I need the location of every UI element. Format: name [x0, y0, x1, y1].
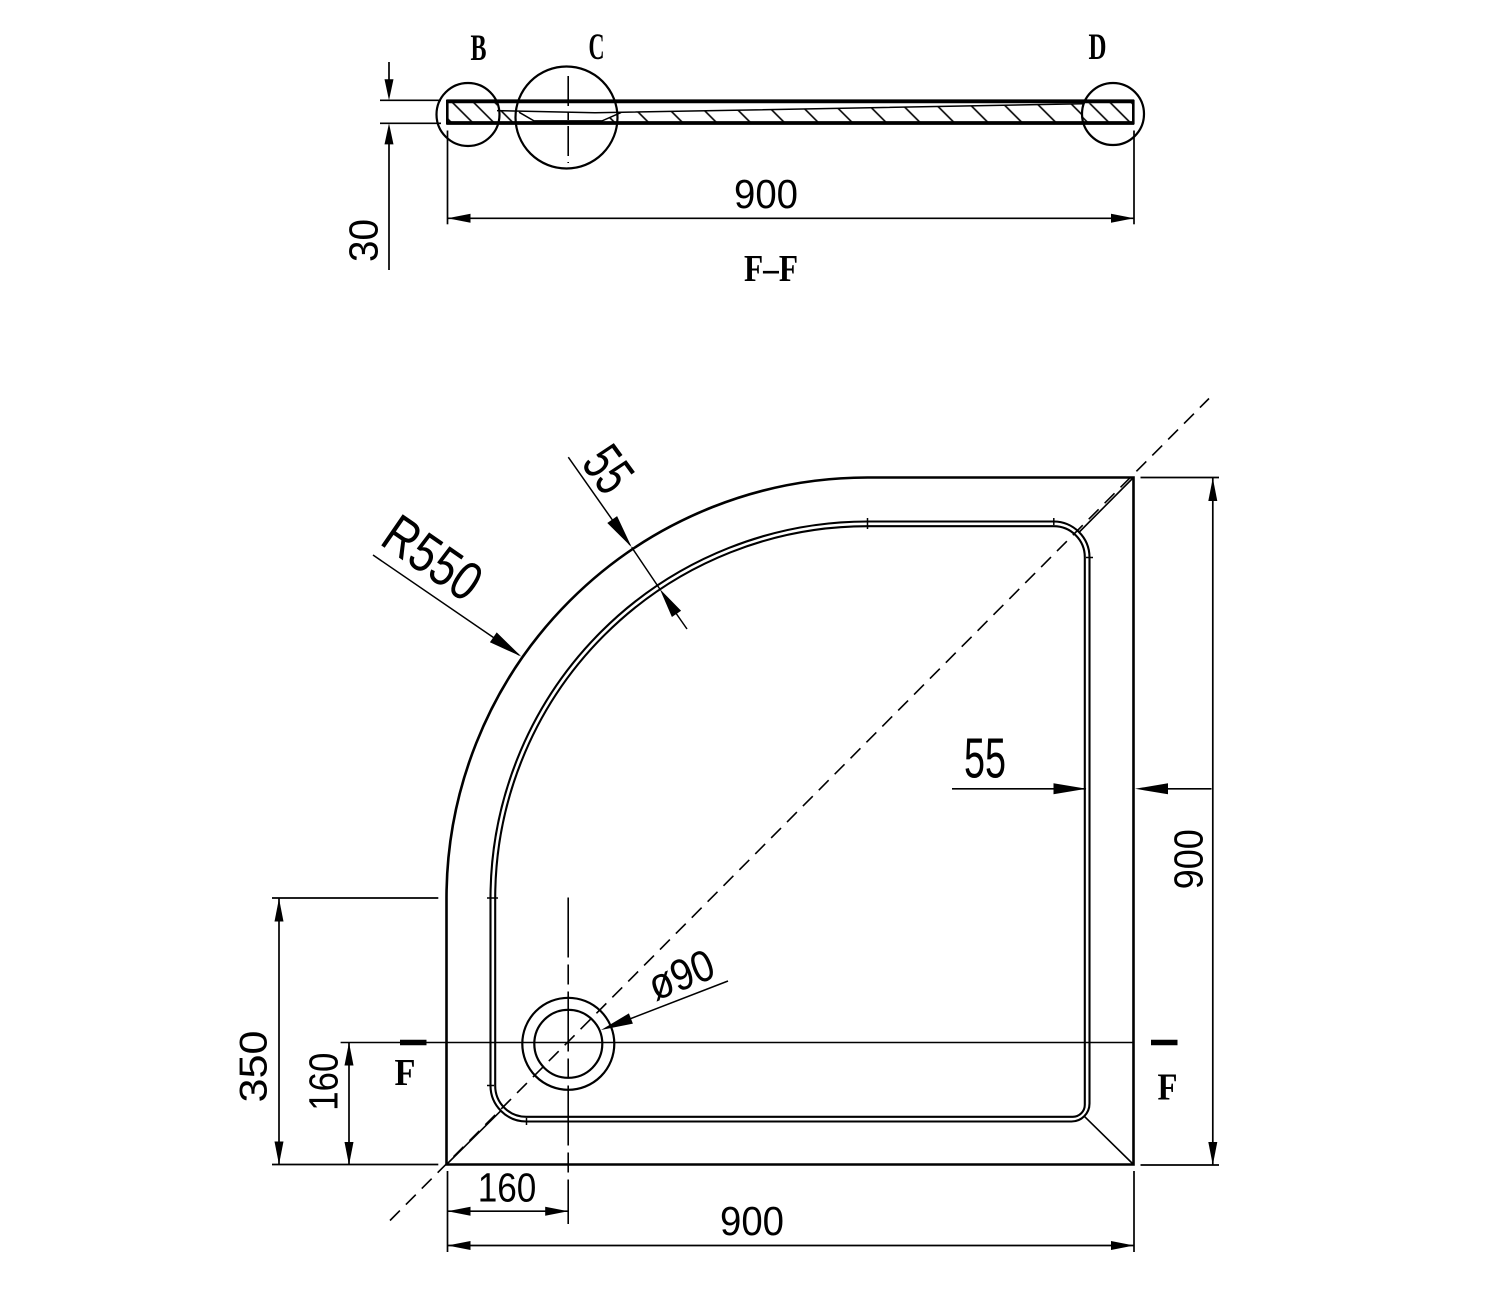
svg-text:900: 900: [720, 1198, 784, 1244]
svg-text:900: 900: [1166, 829, 1212, 889]
svg-text:30: 30: [341, 219, 387, 262]
svg-text:B: B: [471, 28, 487, 69]
svg-text:F: F: [395, 1052, 416, 1094]
svg-text:F–F: F–F: [744, 248, 798, 290]
svg-text:160: 160: [478, 1164, 537, 1210]
svg-text:900: 900: [734, 171, 798, 217]
svg-text:55: 55: [964, 727, 1006, 791]
svg-text:F: F: [1158, 1067, 1178, 1109]
svg-text:D: D: [1089, 27, 1107, 68]
svg-text:350: 350: [233, 1031, 276, 1103]
svg-text:160: 160: [301, 1053, 347, 1111]
svg-text:C: C: [589, 27, 605, 68]
